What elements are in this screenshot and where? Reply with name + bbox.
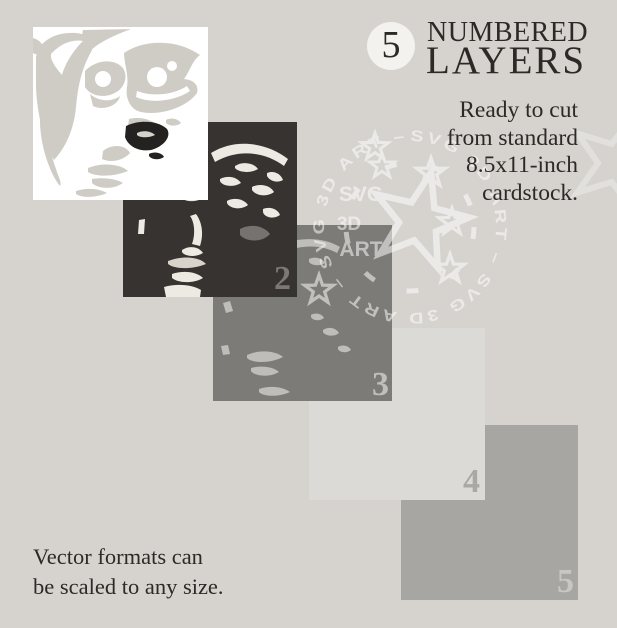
tagline-line: Ready to cut [447, 97, 578, 125]
footer-line: Vector formats can [33, 542, 224, 572]
layer-count-badge: 5 [367, 22, 415, 70]
cardstock-tagline: Ready to cut from standard 8.5x11-inch c… [447, 97, 578, 207]
layer-4-number: 4 [463, 465, 480, 499]
footer-line: be scaled to any size. [33, 572, 224, 602]
product-showcase: 5 4 3 [0, 0, 617, 628]
star-icon [436, 254, 465, 281]
tagline-line: cardstock. [447, 180, 578, 208]
layer-1-artwork [33, 27, 208, 200]
vector-format-note: Vector formats can be scaled to any size… [33, 542, 224, 601]
layer-2-number: 2 [274, 262, 291, 296]
tagline-line: 8.5x11-inch [447, 152, 578, 180]
gray-smudge [240, 226, 270, 241]
title-layers: LAYERS [426, 41, 586, 80]
layer-count-number: 5 [382, 23, 401, 67]
tagline-line: from standard [447, 125, 578, 153]
layer-3-number: 3 [372, 368, 389, 402]
star-icon [370, 153, 395, 177]
star-icon [439, 208, 466, 233]
cutout-hole [125, 122, 168, 160]
layer-5-number: 5 [557, 565, 574, 599]
watermark-text-svg: SVG [339, 183, 383, 206]
star-icon [417, 158, 446, 185]
layer-1-square [33, 27, 208, 200]
lips-highlight [168, 257, 206, 268]
star-icon [362, 133, 389, 158]
